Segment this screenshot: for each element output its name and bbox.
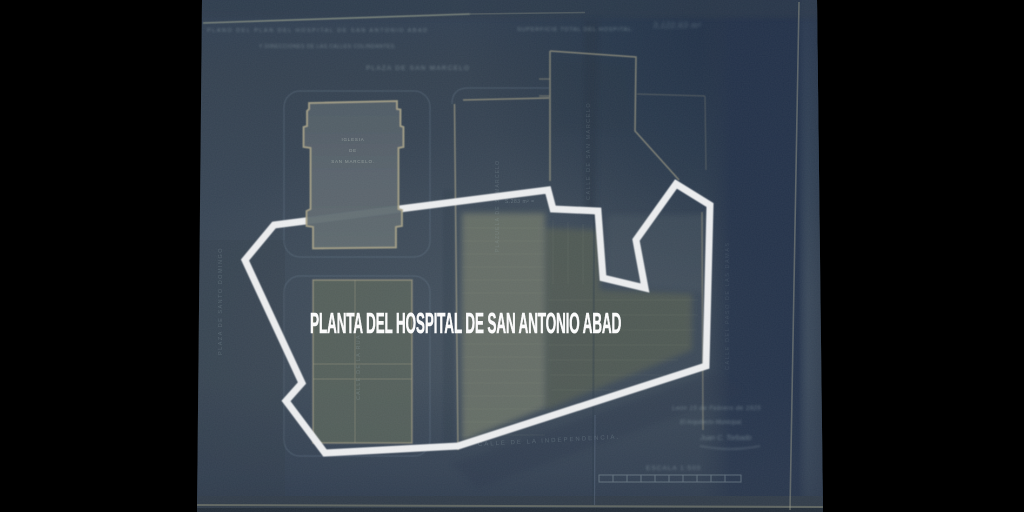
svg-text:PLANTA DEL HOSPITAL DE SAN ANT: PLANTA DEL HOSPITAL DE SAN ANTONIO ABAD: [310, 306, 621, 339]
